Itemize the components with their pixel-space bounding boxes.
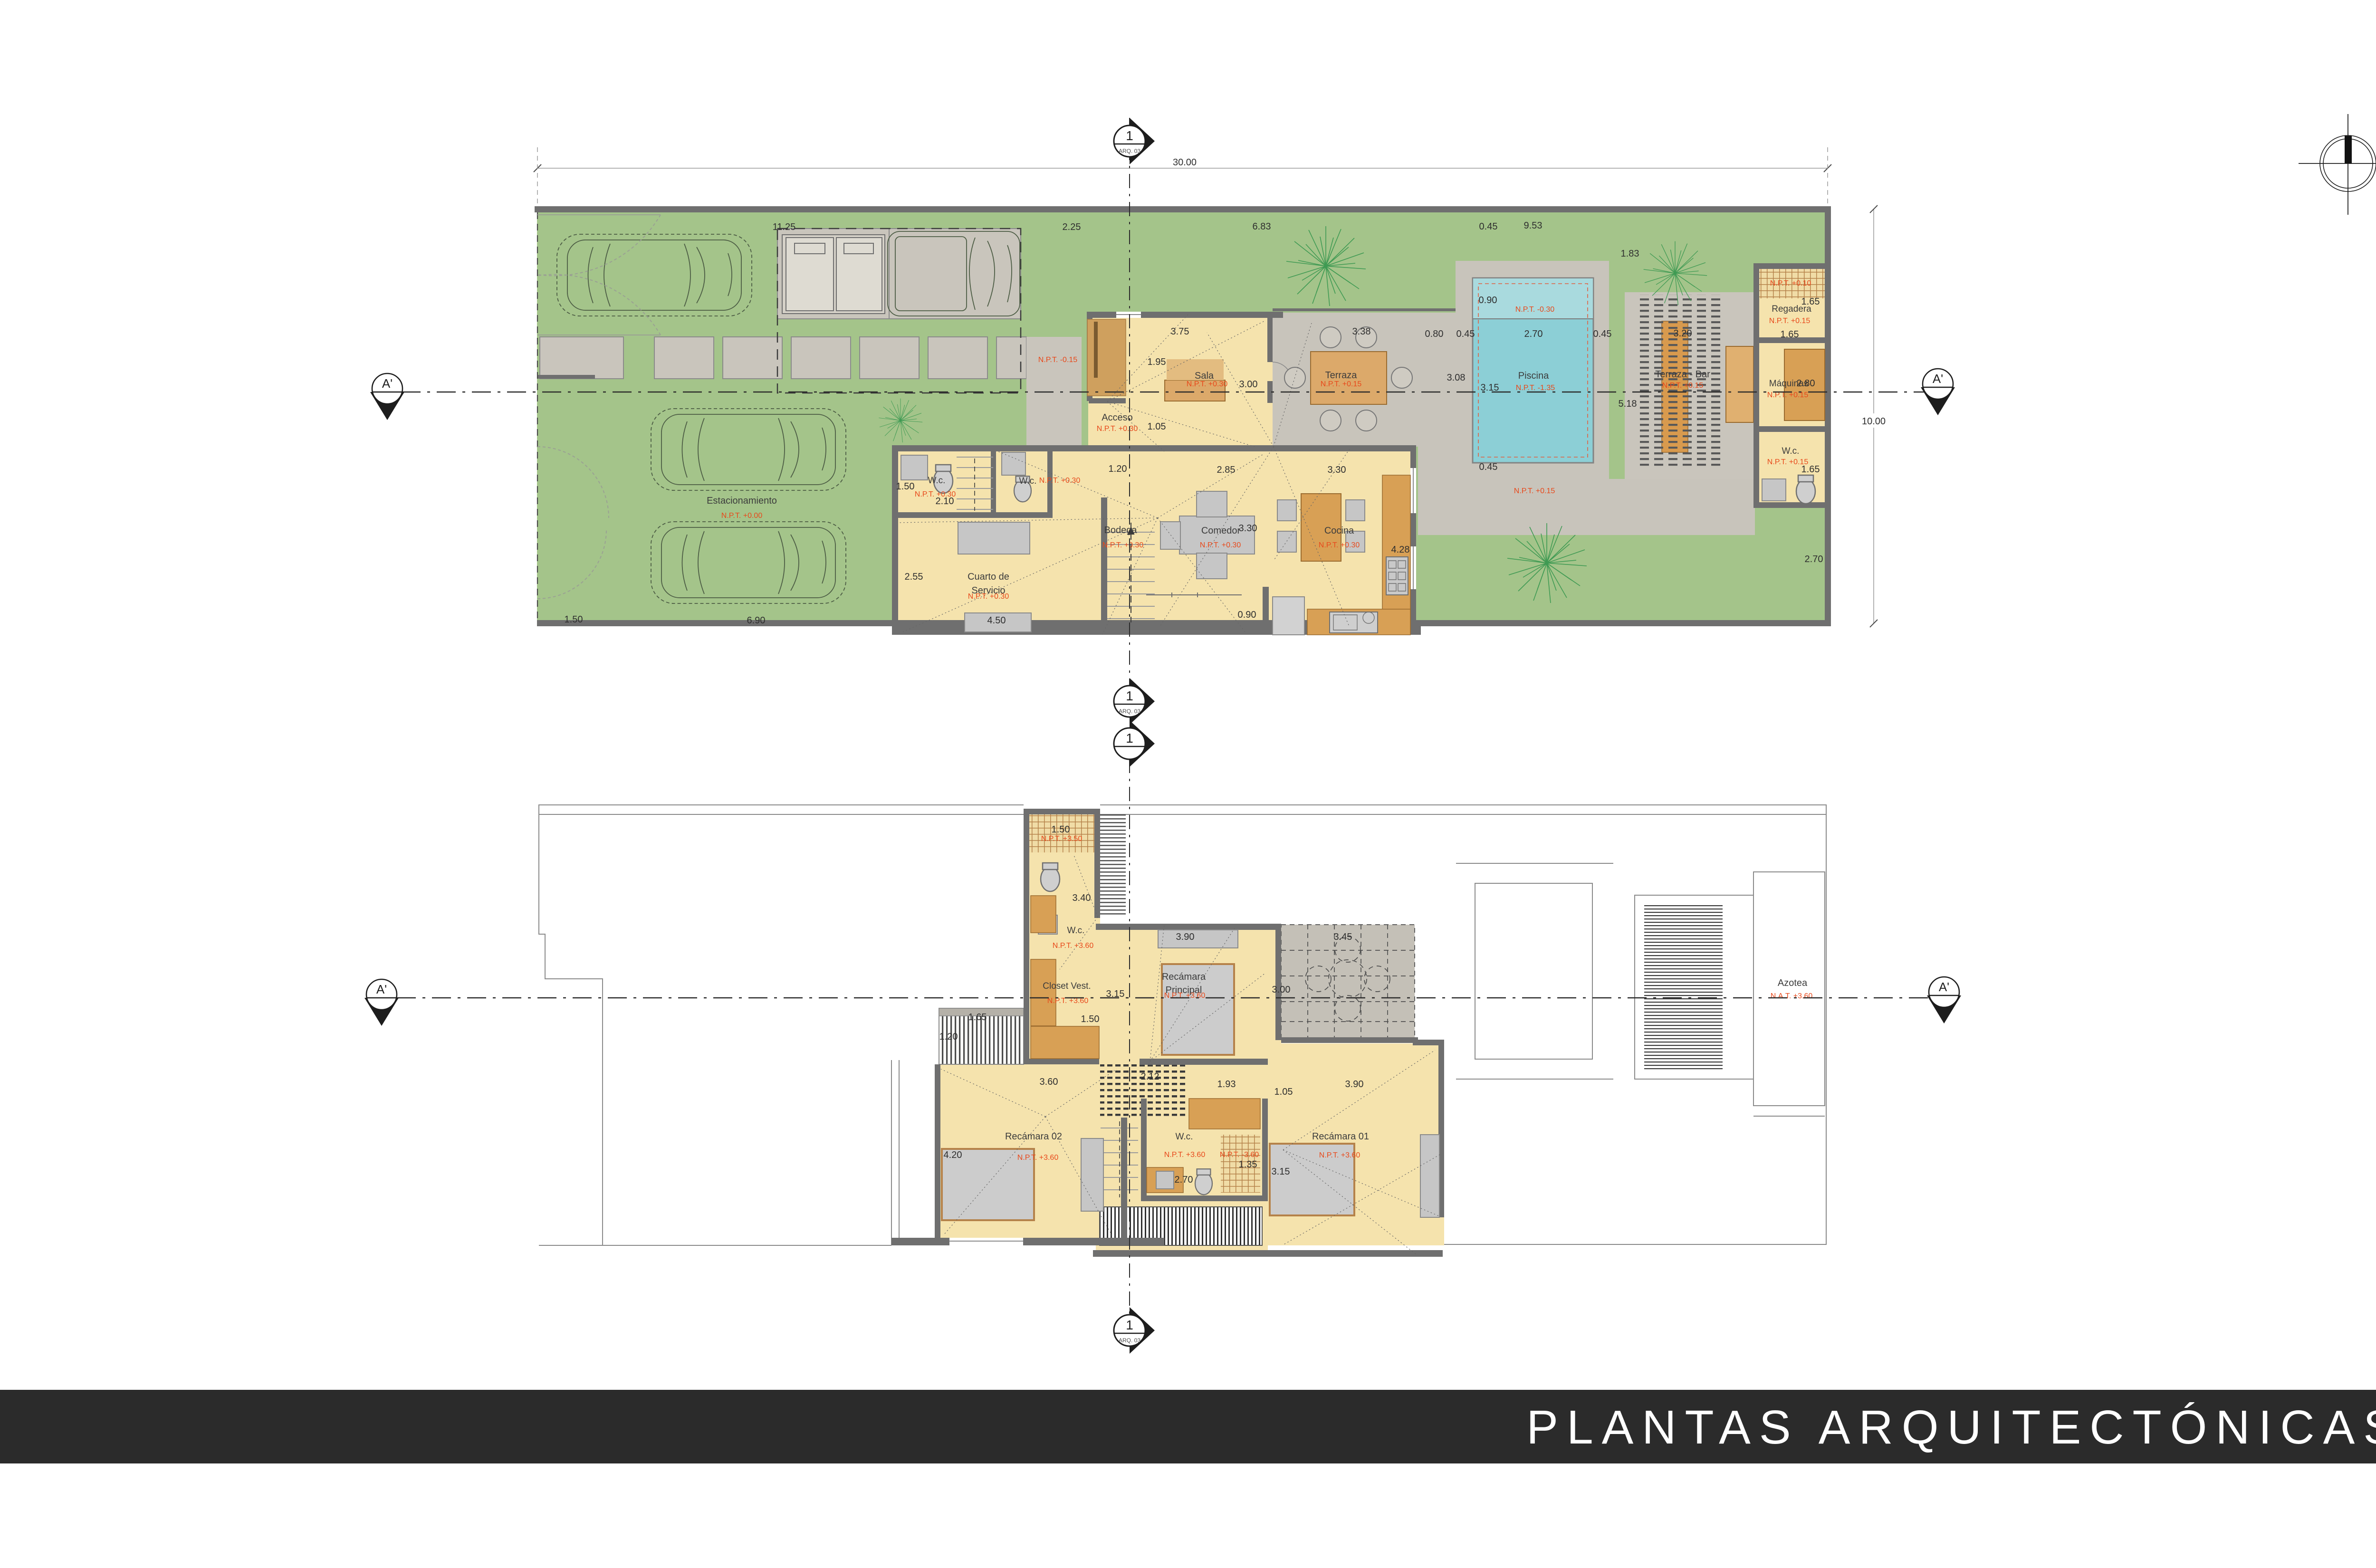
svg-text:Comedor: Comedor (1201, 526, 1241, 536)
svg-text:3.40: 3.40 (1073, 893, 1091, 903)
svg-text:3.60: 3.60 (1040, 1077, 1058, 1087)
svg-text:ARQ. 03: ARQ. 03 (1119, 148, 1140, 154)
svg-text:N.P.T. +0.30: N.P.T. +0.30 (1097, 425, 1138, 433)
svg-text:Cocina: Cocina (1324, 526, 1354, 536)
svg-text:N.P.T. -3.60: N.P.T. -3.60 (1220, 1151, 1259, 1159)
svg-text:N.P.T. +0.30: N.P.T. +0.30 (1319, 541, 1360, 549)
svg-text:0.45: 0.45 (1593, 329, 1612, 339)
svg-text:10.00: 10.00 (1862, 416, 1886, 427)
svg-text:4.28: 4.28 (1391, 545, 1410, 555)
svg-text:N.P.T. +0.30: N.P.T. +0.30 (1102, 541, 1144, 549)
svg-text:W.c.: W.c. (1176, 1132, 1193, 1142)
svg-text:1.50: 1.50 (1081, 1014, 1100, 1024)
svg-text:3.90: 3.90 (1176, 932, 1195, 942)
svg-text:6.83: 6.83 (1253, 221, 1271, 232)
svg-text:A': A' (382, 376, 393, 391)
svg-text:W.c.: W.c. (928, 476, 946, 486)
svg-text:3.00: 3.00 (1239, 379, 1258, 390)
svg-text:Terraza - Bar: Terraza - Bar (1655, 369, 1710, 380)
svg-text:1: 1 (1126, 688, 1133, 703)
svg-text:1: 1 (1126, 731, 1133, 746)
svg-text:N.A.T. +3.60: N.A.T. +3.60 (1771, 992, 1813, 1000)
svg-text:N.P.T. +0.30: N.P.T. +0.30 (1200, 541, 1241, 549)
svg-text:N.P.T. +0.30: N.P.T. +0.30 (1187, 380, 1228, 388)
svg-text:N.P.T. +3.60: N.P.T. +3.60 (1053, 942, 1094, 950)
svg-text:Acceso: Acceso (1102, 412, 1133, 423)
svg-text:1.95: 1.95 (1148, 357, 1166, 367)
svg-text:0.90: 0.90 (1479, 295, 1497, 306)
svg-text:2.70: 2.70 (1805, 554, 1823, 564)
svg-text:1.05: 1.05 (1148, 421, 1166, 432)
svg-text:2.85: 2.85 (1217, 465, 1236, 475)
svg-text:0.80: 0.80 (1425, 329, 1444, 339)
svg-text:3.75: 3.75 (1171, 326, 1189, 337)
svg-text:2.70: 2.70 (1175, 1175, 1193, 1185)
svg-text:N.P.T. +0.00: N.P.T. +0.00 (721, 512, 763, 520)
svg-text:0.45: 0.45 (1479, 462, 1498, 472)
svg-text:5.18: 5.18 (1619, 399, 1637, 409)
svg-text:A': A' (1939, 980, 1949, 994)
svg-text:3.08: 3.08 (1447, 373, 1466, 383)
svg-text:3.15: 3.15 (1481, 382, 1499, 393)
svg-text:Estacionamiento: Estacionamiento (707, 496, 777, 506)
svg-text:6.90: 6.90 (747, 615, 766, 626)
svg-text:1.35: 1.35 (1239, 1159, 1257, 1170)
svg-text:Recámara: Recámara (1162, 972, 1206, 982)
svg-text:3.20: 3.20 (1674, 328, 1692, 339)
svg-text:N.P.T. +0.15: N.P.T. +0.15 (1321, 380, 1362, 388)
svg-text:1.20: 1.20 (939, 1032, 958, 1042)
svg-text:4.20: 4.20 (944, 1150, 962, 1160)
svg-text:N.P.T. +3.60: N.P.T. +3.60 (1164, 1151, 1206, 1159)
svg-text:9.53: 9.53 (1524, 220, 1542, 231)
svg-text:A': A' (1933, 372, 1943, 386)
svg-text:ARQ. 03: ARQ. 03 (1119, 708, 1140, 715)
svg-text:0.45: 0.45 (1456, 329, 1475, 339)
svg-text:N.P.T. +0.15: N.P.T. +0.15 (1662, 382, 1704, 390)
svg-text:1.65: 1.65 (1801, 296, 1820, 307)
svg-text:N.P.T. +0.15: N.P.T. +0.15 (1769, 317, 1811, 325)
svg-text:1: 1 (1126, 1318, 1133, 1332)
svg-text:Recámara 02: Recámara 02 (1005, 1131, 1062, 1142)
svg-text:3.30: 3.30 (1239, 523, 1257, 534)
svg-text:3.30: 3.30 (1328, 465, 1346, 475)
svg-text:N.P.T. +3.60: N.P.T. +3.60 (1319, 1151, 1360, 1159)
svg-text:N.P.T. +3.60: N.P.T. +3.60 (1164, 992, 1206, 1000)
svg-text:N.P.T. +0.15: N.P.T. +0.15 (1514, 487, 1555, 495)
svg-text:ARQ. 03: ARQ. 03 (1119, 1337, 1140, 1344)
svg-text:Terraza: Terraza (1325, 370, 1358, 381)
svg-text:30.00: 30.00 (1173, 157, 1197, 168)
svg-text:1.83: 1.83 (1621, 249, 1639, 259)
svg-text:1.05: 1.05 (1274, 1087, 1293, 1097)
svg-text:1.50: 1.50 (1052, 824, 1070, 835)
svg-text:Piscina: Piscina (1518, 371, 1549, 381)
svg-text:4.50: 4.50 (987, 615, 1006, 626)
svg-text:3.38: 3.38 (1352, 326, 1371, 337)
svg-text:1.20: 1.20 (1109, 464, 1127, 474)
svg-text:2.70: 2.70 (1524, 329, 1543, 339)
svg-text:N.P.T. -0.30: N.P.T. -0.30 (1515, 306, 1555, 314)
svg-text:1.50: 1.50 (896, 481, 915, 492)
svg-text:3.45: 3.45 (1334, 932, 1352, 942)
svg-text:0.45: 0.45 (1479, 221, 1498, 232)
svg-text:1.93: 1.93 (1217, 1079, 1236, 1090)
svg-text:2.12: 2.12 (1141, 1071, 1159, 1082)
svg-text:Cuarto de: Cuarto de (968, 572, 1009, 582)
svg-text:N.P.T. -0.15: N.P.T. -0.15 (1038, 356, 1078, 364)
svg-text:1: 1 (1126, 128, 1133, 143)
svg-text:1.65: 1.65 (968, 1012, 987, 1023)
svg-text:11.25: 11.25 (773, 222, 796, 232)
svg-text:1.65: 1.65 (1781, 329, 1799, 340)
svg-text:2.25: 2.25 (1063, 222, 1081, 232)
svg-text:2.55: 2.55 (905, 572, 923, 582)
svg-text:N.P.T. +3.50: N.P.T. +3.50 (1041, 835, 1083, 843)
svg-text:N.P.T. -1.35: N.P.T. -1.35 (1516, 384, 1555, 392)
svg-text:0.90: 0.90 (1238, 610, 1256, 620)
svg-text:1.50: 1.50 (565, 614, 583, 625)
svg-text:PLANTAS ARQUITECTÓNICAS: PLANTAS ARQUITECTÓNICAS (1526, 1401, 2376, 1454)
svg-text:Recámara 01: Recámara 01 (1312, 1131, 1369, 1142)
svg-text:Bodega: Bodega (1104, 525, 1138, 535)
svg-text:3.15: 3.15 (1272, 1166, 1290, 1177)
svg-text:A': A' (376, 982, 387, 996)
svg-text:Sala: Sala (1195, 371, 1214, 381)
svg-text:W.c.: W.c. (1782, 446, 1800, 456)
svg-text:W.c.: W.c. (1019, 476, 1037, 486)
svg-text:3.90: 3.90 (1345, 1079, 1364, 1090)
svg-text:Closet Vest.: Closet Vest. (1043, 981, 1091, 991)
svg-text:N.P.T. +0.30: N.P.T. +0.30 (1039, 477, 1081, 485)
svg-text:Azotea: Azotea (1778, 978, 1808, 988)
svg-text:N.P.T. +0.30: N.P.T. +0.30 (968, 593, 1009, 601)
svg-text:N.P.T. +3.60: N.P.T. +3.60 (1017, 1154, 1059, 1162)
svg-text:1.65: 1.65 (1801, 464, 1820, 475)
svg-text:W.c.: W.c. (1067, 926, 1085, 936)
svg-text:3.00: 3.00 (1272, 985, 1291, 995)
svg-text:N.P.T. +0.10: N.P.T. +0.10 (1770, 279, 1811, 287)
svg-text:2.80: 2.80 (1797, 378, 1815, 389)
svg-text:2.10: 2.10 (936, 496, 954, 507)
